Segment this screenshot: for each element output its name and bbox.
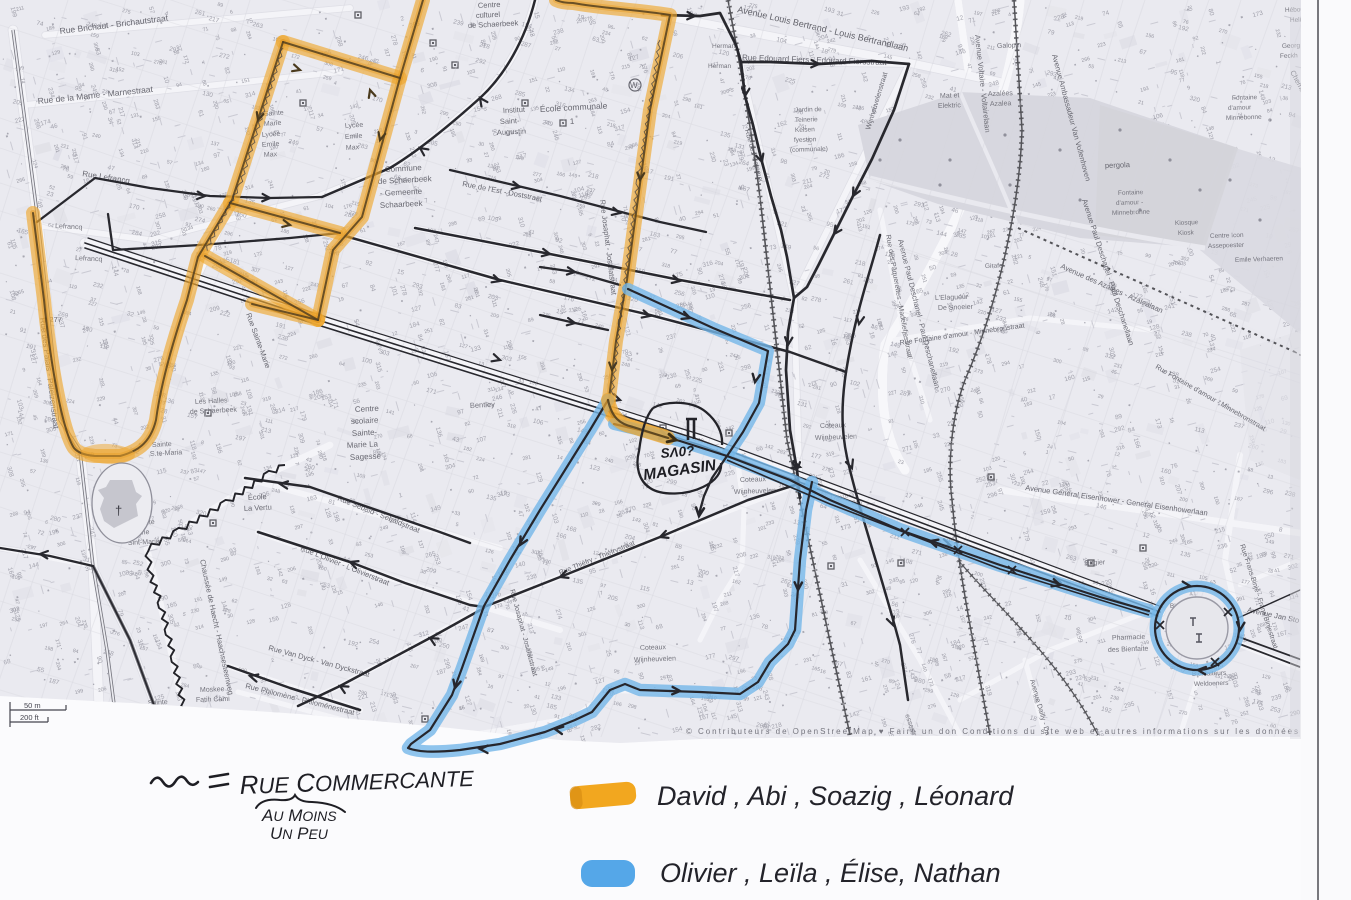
svg-text:50 m: 50 m	[24, 701, 41, 710]
svg-text:AU MOINS: AU MOINS	[261, 806, 337, 825]
svg-text:SΛ0?: SΛ0?	[660, 443, 695, 461]
svg-text:Olivier , Leïla , Élise, Natha: Olivier , Leïla , Élise, Nathan	[660, 858, 1001, 888]
svg-text:UN PEU: UN PEU	[270, 824, 329, 843]
svg-text:†: †	[115, 503, 122, 518]
svg-text:David , Abi , Soazig , Léonard: David , Abi , Soazig , Léonard	[657, 781, 1014, 811]
svg-text:200 ft: 200 ft	[20, 713, 40, 722]
